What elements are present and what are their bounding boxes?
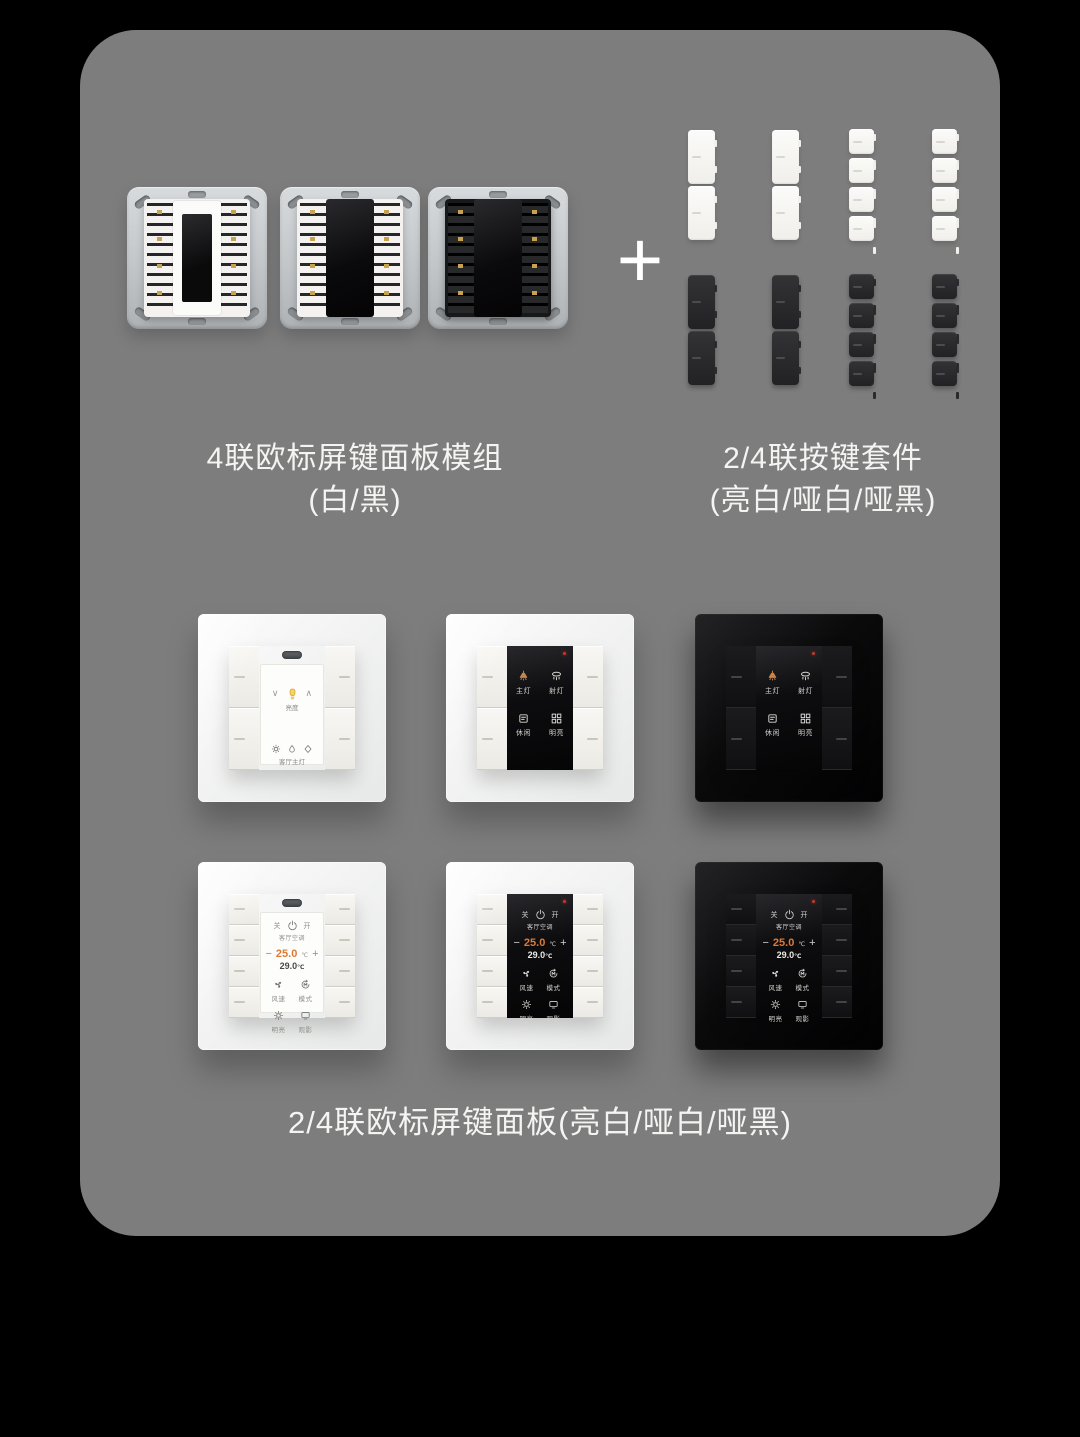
panel-module-white-screen	[280, 187, 420, 329]
rocker-key	[726, 894, 756, 925]
keycap-segment	[688, 331, 715, 385]
set-temperature: 25.0	[276, 948, 297, 960]
room-temperature-unit: ℃	[545, 954, 552, 960]
rocker-key	[726, 646, 756, 708]
set-temperature: 25.0	[524, 937, 545, 949]
keycap-segment	[688, 130, 715, 184]
switch-module: 关 开 客厅空调 − 25.0 ℃ +	[477, 894, 603, 1018]
module-body	[445, 199, 551, 317]
drop-icon	[287, 744, 297, 754]
ac-function-item: 观影	[547, 999, 561, 1023]
minus-icon: −	[265, 949, 271, 960]
set-temperature-unit: ℃	[798, 941, 805, 948]
rocker-key	[573, 956, 603, 987]
ac-function-item: 观影	[796, 999, 810, 1023]
scene-item: 明亮	[549, 712, 564, 738]
key-column-left	[477, 646, 507, 770]
ac-on-label: 开	[304, 921, 311, 931]
switch-module: 主灯 射灯 休闲	[726, 646, 852, 770]
panel-white-scene: 主灯 射灯 休闲	[446, 614, 634, 802]
keycaps-caption: 2/4联按键套件 (亮白/哑白/哑黑)	[603, 438, 1043, 522]
device-name: 客厅主灯	[279, 756, 305, 766]
scene-item: 主灯	[765, 670, 780, 696]
mounting-plate	[127, 187, 267, 329]
lcd-screen: ∨ ∧ 亮度	[260, 664, 324, 765]
panel-screen: 关 开 客厅空调 − 25.0 ℃ +	[756, 894, 822, 1018]
contact-strip	[448, 203, 474, 313]
fan-icon	[521, 968, 532, 979]
rocker-key	[325, 987, 355, 1018]
mount-slot	[188, 318, 206, 325]
leisure-icon	[517, 712, 530, 725]
ac-function-item: 模式	[299, 979, 313, 1003]
rocker-key	[822, 708, 852, 770]
rocker-key	[822, 987, 852, 1018]
sensor-pill	[282, 651, 302, 659]
keycap-segment	[849, 361, 874, 386]
sun-icon	[521, 999, 532, 1010]
key-column-right	[325, 894, 355, 1018]
rocker-key	[822, 925, 852, 956]
room-temperature-unit: ℃	[794, 954, 801, 960]
rocker-key	[726, 708, 756, 770]
bottom-caption: 2/4联欧标屏键面板(亮白/哑白/哑黑)	[80, 1102, 1000, 1144]
room-temperature: 29.0	[777, 950, 795, 960]
modules-caption-line1: 4联欧标屏键面板模组	[90, 438, 620, 480]
pendant-light-icon	[517, 670, 530, 683]
key-column-right	[822, 894, 852, 1018]
diamond-icon	[303, 744, 313, 754]
keycap-black-2gang	[772, 275, 799, 385]
panel-screen: ∨ ∧ 亮度	[259, 646, 325, 770]
keycap-white-4gang	[849, 129, 874, 241]
mount-slot	[341, 318, 359, 325]
mode-icon	[548, 968, 559, 979]
sun-icon	[273, 1010, 284, 1021]
minus-icon: −	[513, 938, 519, 949]
scene-item: 射灯	[549, 670, 564, 696]
bright-icon	[550, 712, 563, 725]
keycap-segment	[932, 274, 957, 299]
rocker-key	[325, 894, 355, 925]
sun-icon	[770, 999, 781, 1010]
rocker-key	[229, 925, 259, 956]
keycap-white-2gang	[688, 130, 715, 240]
rocker-key	[477, 708, 507, 770]
rocker-key	[229, 987, 259, 1018]
keycap-black-4gang	[932, 274, 957, 386]
keycap-segment	[849, 129, 874, 154]
power-icon	[287, 920, 298, 931]
keycap-black-4gang	[849, 274, 874, 386]
set-temperature-unit: ℃	[301, 952, 308, 959]
modules-caption-line2: (白/黑)	[90, 480, 620, 522]
power-icon	[784, 909, 795, 920]
screen-window	[474, 199, 522, 317]
keycap-segment	[849, 332, 874, 357]
keycap-segment	[932, 187, 957, 212]
panel-white-dimmer: ∨ ∧ 亮度	[198, 614, 386, 802]
downlight-icon	[799, 670, 812, 683]
ac-function-item: 明亮	[272, 1010, 286, 1034]
scene-item: 明亮	[798, 712, 813, 738]
keycap-segment	[932, 129, 957, 154]
switch-module: ∨ ∧ 亮度	[229, 646, 355, 770]
panel-screen: 主灯 射灯 休闲	[756, 646, 822, 770]
mount-slot	[489, 191, 507, 198]
switch-module: 关 开 客厅空调 − 25.0 ℃ +	[229, 894, 355, 1018]
keycap-segment	[849, 303, 874, 328]
monitor-icon	[548, 999, 559, 1010]
key-column-right	[573, 646, 603, 770]
keycap-segment	[932, 303, 957, 328]
keycaps-caption-line2: (亮白/哑白/哑黑)	[603, 480, 1043, 522]
screen-window	[326, 199, 374, 317]
ac-on-label: 开	[552, 910, 559, 920]
contact-strip	[300, 203, 326, 313]
keycap-segment	[849, 187, 874, 212]
bright-icon	[799, 712, 812, 725]
mounting-plate	[280, 187, 420, 329]
key-column-left	[726, 894, 756, 1018]
panel-screen: 关 开 客厅空调 − 25.0 ℃ +	[259, 894, 325, 1018]
rocker-key	[229, 646, 259, 708]
key-column-right	[573, 894, 603, 1018]
keycap-segment	[772, 186, 799, 240]
sensor-pill	[282, 899, 302, 907]
ac-device-name: 客厅空调	[527, 922, 553, 931]
ac-function-item: 观影	[299, 1010, 313, 1034]
ac-off-label: 关	[274, 921, 281, 931]
rocker-key	[573, 987, 603, 1018]
rocker-key	[229, 894, 259, 925]
plus-icon: +	[809, 938, 815, 949]
power-icon	[535, 909, 546, 920]
keycap-segment	[932, 216, 957, 241]
rocker-key	[573, 925, 603, 956]
rocker-key	[325, 925, 355, 956]
panel-black-ac: 关 开 客厅空调 − 25.0 ℃ +	[695, 862, 883, 1050]
key-column-left	[229, 646, 259, 770]
rocker-key	[325, 708, 355, 770]
key-column-left	[477, 894, 507, 1018]
plus-sign: +	[600, 220, 680, 300]
rocker-key	[822, 646, 852, 708]
module-body	[144, 199, 250, 317]
contact-strip	[221, 203, 247, 313]
rocker-key	[477, 925, 507, 956]
contact-strip	[147, 203, 173, 313]
scene-item: 射灯	[798, 670, 813, 696]
set-temperature-unit: ℃	[549, 941, 556, 948]
ac-function-item: 明亮	[520, 999, 534, 1023]
mode-icon	[300, 979, 311, 990]
chevron-down-icon: ∨	[272, 688, 279, 699]
scene-item: 休闲	[516, 712, 531, 738]
product-card: + 4	[80, 30, 1000, 1236]
mount-slot	[489, 318, 507, 325]
ac-function-item: 模式	[547, 968, 561, 992]
keycap-black-2gang	[688, 275, 715, 385]
mounting-plate	[428, 187, 568, 329]
rocker-key	[573, 646, 603, 708]
keycap-segment	[849, 216, 874, 241]
switch-module: 关 开 客厅空调 − 25.0 ℃ +	[726, 894, 852, 1018]
monitor-icon	[300, 1010, 311, 1021]
minus-icon: −	[762, 938, 768, 949]
panel-black-scene: 主灯 射灯 休闲	[695, 614, 883, 802]
plus-icon: +	[312, 949, 318, 960]
fan-icon	[273, 979, 284, 990]
key-column-left	[726, 646, 756, 770]
keycap-segment	[849, 158, 874, 183]
panel-module-black	[428, 187, 568, 329]
keycap-segment	[772, 130, 799, 184]
switch-module: 主灯 射灯 休闲	[477, 646, 603, 770]
chevron-up-icon: ∧	[306, 688, 313, 699]
keycaps-caption-line1: 2/4联按键套件	[603, 438, 1043, 480]
contact-strip	[374, 203, 400, 313]
rocker-key	[477, 987, 507, 1018]
key-column-right	[822, 646, 852, 770]
keycap-segment	[932, 158, 957, 183]
rocker-key	[726, 956, 756, 987]
mount-slot	[188, 191, 206, 198]
keycap-segment	[772, 331, 799, 385]
keycap-segment	[849, 274, 874, 299]
ac-function-item: 风速	[272, 979, 286, 1003]
monitor-icon	[797, 999, 808, 1010]
keycap-segment	[772, 275, 799, 329]
keycap-segment	[688, 186, 715, 240]
room-temperature: 29.0	[528, 950, 546, 960]
set-temperature: 25.0	[773, 937, 794, 949]
rocker-key	[229, 708, 259, 770]
mode-icon	[797, 968, 808, 979]
rocker-key	[325, 956, 355, 987]
rocker-key	[726, 925, 756, 956]
keycap-segment	[932, 361, 957, 386]
scene-item: 主灯	[516, 670, 531, 696]
rocker-key	[477, 894, 507, 925]
ac-off-label: 关	[771, 910, 778, 920]
key-column-right	[325, 646, 355, 770]
ac-function-item: 模式	[796, 968, 810, 992]
rocker-key	[726, 987, 756, 1018]
module-body	[297, 199, 403, 317]
panel-white-ac: 关 开 客厅空调 − 25.0 ℃ +	[446, 862, 634, 1050]
scene-item: 休闲	[765, 712, 780, 738]
ac-off-label: 关	[522, 910, 529, 920]
keycap-white-4gang	[932, 129, 957, 241]
rocker-key	[477, 646, 507, 708]
panel-white-ac-lightscreen: 关 开 客厅空调 − 25.0 ℃ +	[198, 862, 386, 1050]
ac-device-name: 客厅空调	[279, 933, 305, 942]
rocker-key	[573, 708, 603, 770]
leisure-icon	[766, 712, 779, 725]
sun-icon	[271, 744, 281, 754]
rocker-key	[477, 956, 507, 987]
room-temperature: 29.0	[280, 961, 298, 971]
panel-screen: 主灯 射灯 休闲	[507, 646, 573, 770]
ac-device-name: 客厅空调	[776, 922, 802, 931]
ac-function-item: 明亮	[769, 999, 783, 1023]
mount-slot	[341, 191, 359, 198]
panel-module-white-frame	[127, 187, 267, 329]
lcd-screen: 关 开 客厅空调 − 25.0 ℃ +	[260, 912, 324, 1013]
downlight-icon	[550, 670, 563, 683]
ac-function-item: 风速	[769, 968, 783, 992]
ac-on-label: 开	[801, 910, 808, 920]
plus-icon: +	[560, 938, 566, 949]
rocker-key	[573, 894, 603, 925]
key-column-left	[229, 894, 259, 1018]
screen-window	[173, 201, 221, 315]
pendant-light-icon	[766, 670, 779, 683]
keycap-segment	[688, 275, 715, 329]
rocker-key	[822, 956, 852, 987]
fan-icon	[770, 968, 781, 979]
page: + 4	[0, 0, 1080, 1437]
keycap-white-2gang	[772, 130, 799, 240]
rocker-key	[325, 646, 355, 708]
panel-screen: 关 开 客厅空调 − 25.0 ℃ +	[507, 894, 573, 1018]
ac-function-item: 风速	[520, 968, 534, 992]
rocker-key	[229, 956, 259, 987]
brightness-label: 亮度	[286, 702, 299, 712]
bulb-icon	[286, 687, 299, 700]
room-temperature-unit: ℃	[297, 965, 304, 971]
modules-caption: 4联欧标屏键面板模组 (白/黑)	[90, 438, 620, 522]
keycap-segment	[932, 332, 957, 357]
rocker-key	[822, 894, 852, 925]
contact-strip	[522, 203, 548, 313]
